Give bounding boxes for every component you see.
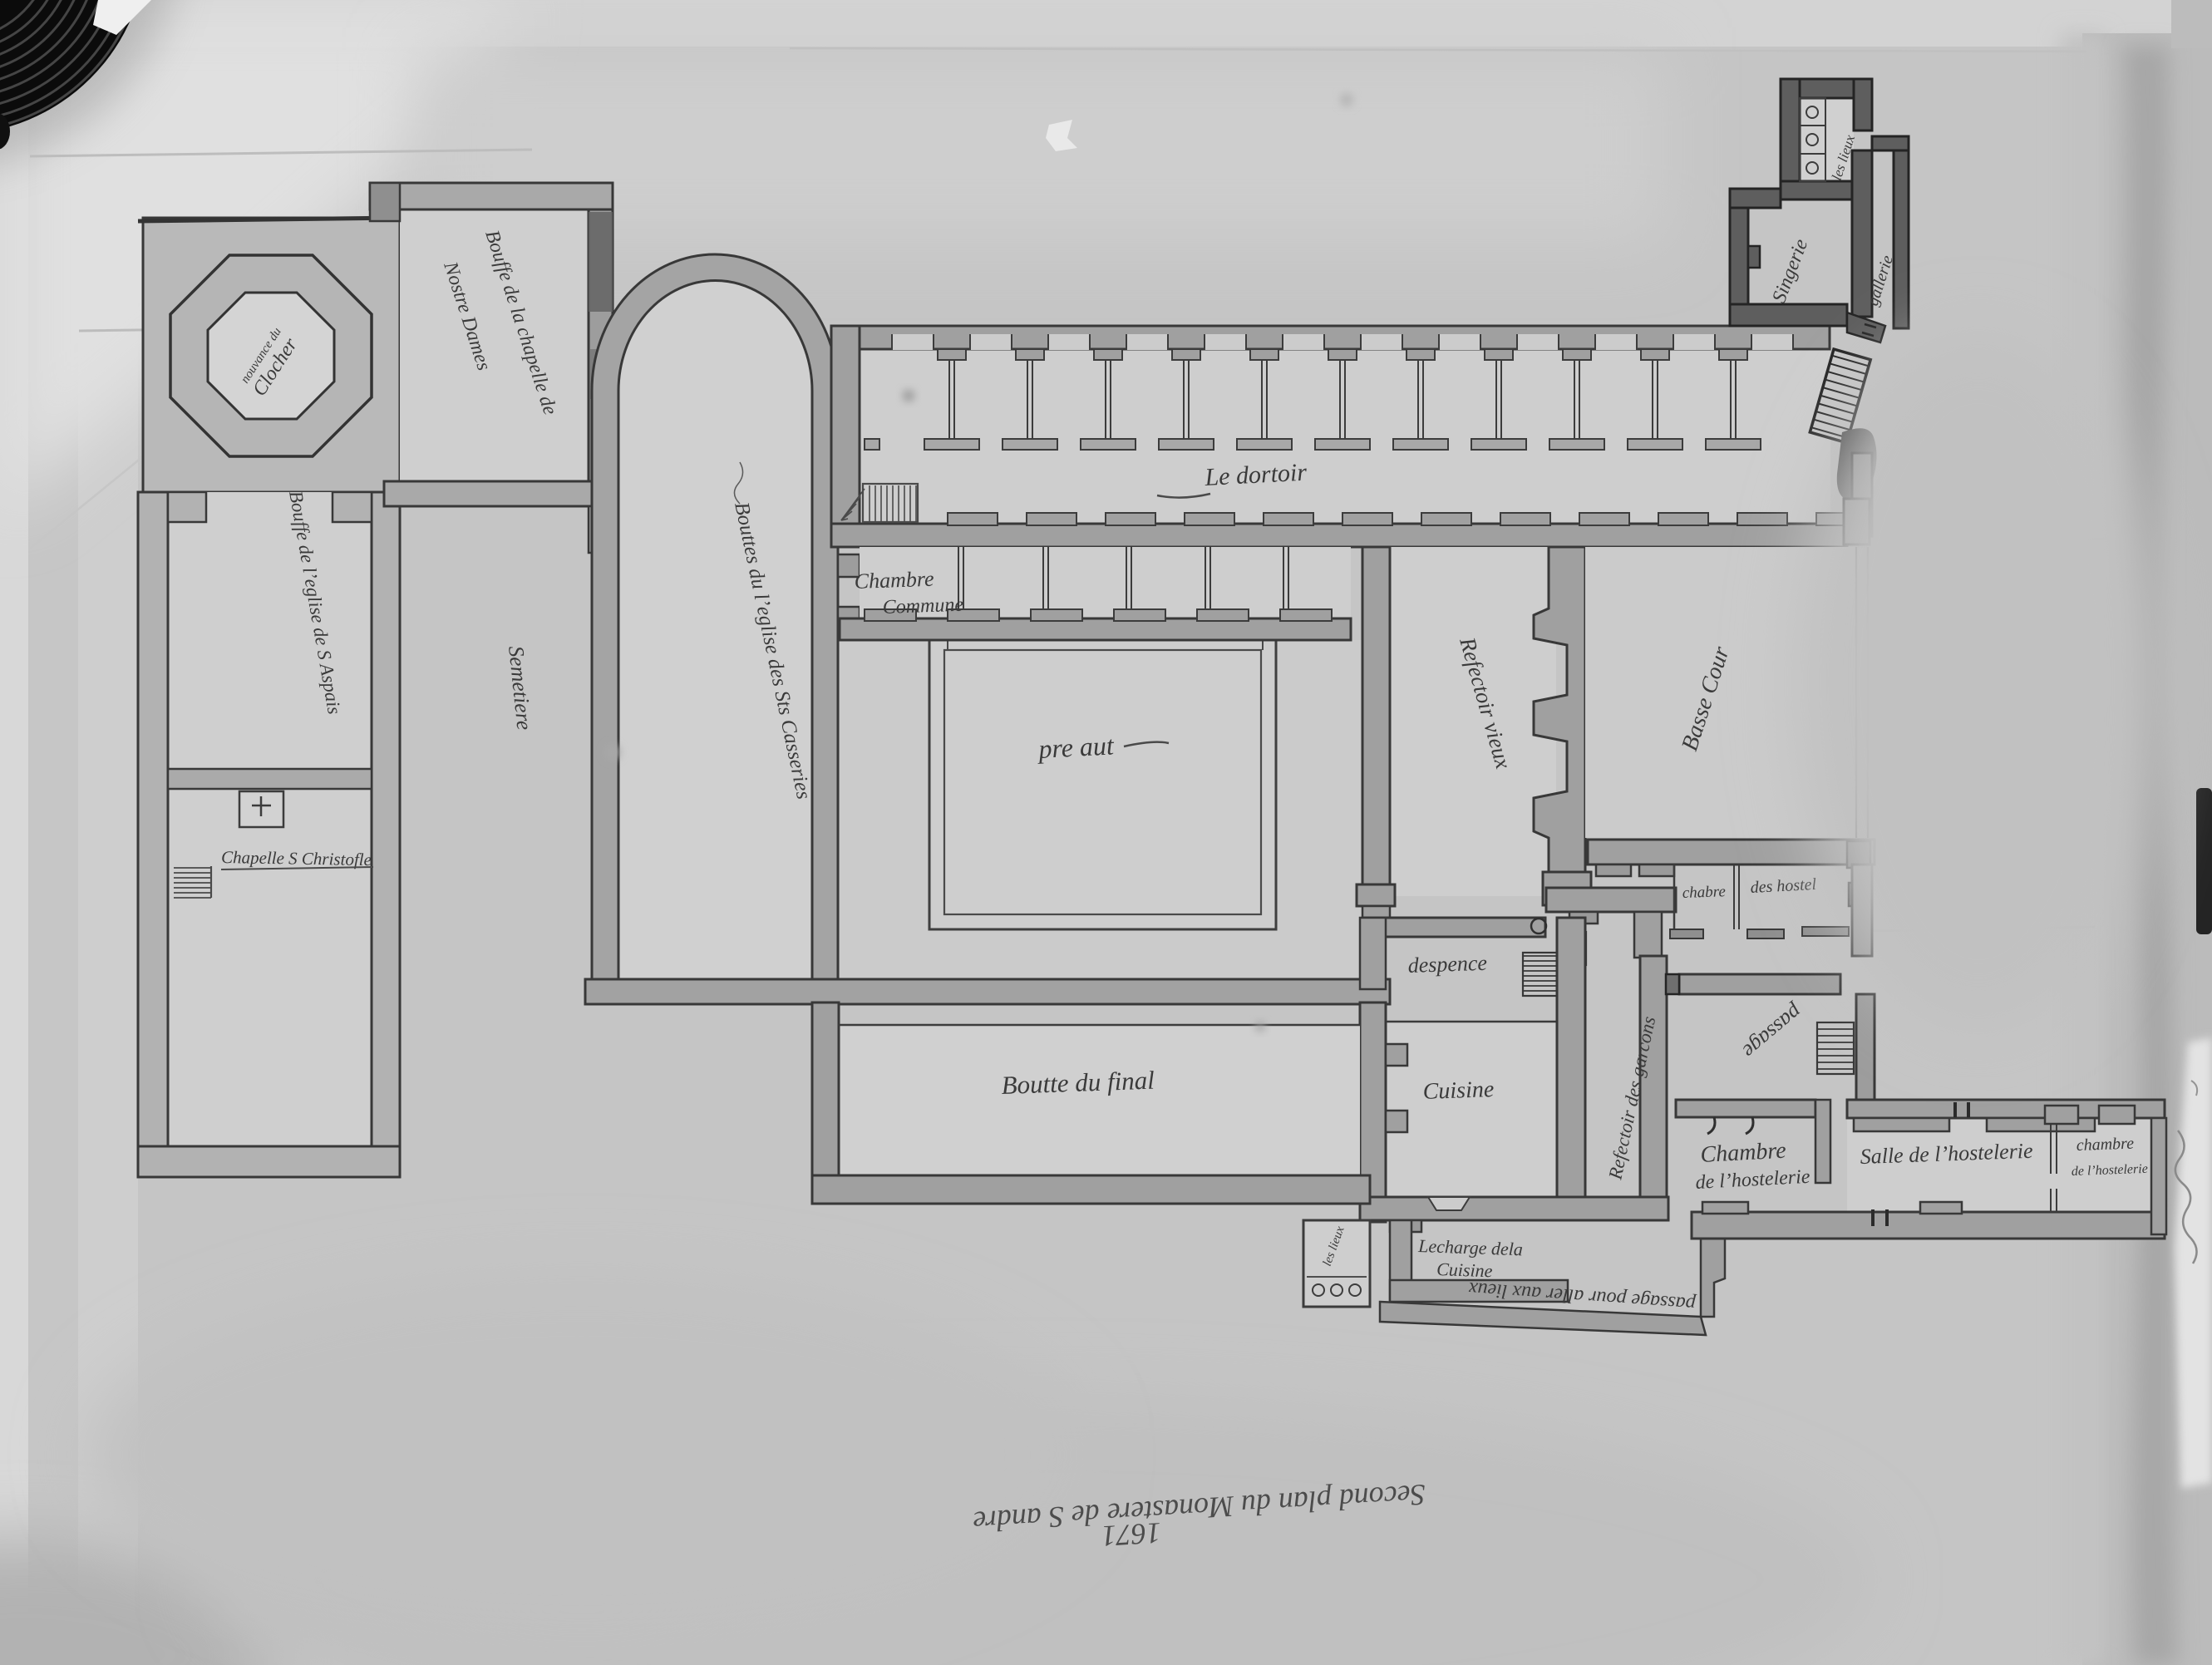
svg-text:Cuisine: Cuisine (1422, 1076, 1495, 1105)
svg-text:Chambre: Chambre (854, 567, 934, 594)
svg-text:despence: despence (1407, 951, 1487, 978)
svg-text:Boutte du final: Boutte du final (1001, 1066, 1155, 1100)
svg-text:Le dortoir: Le dortoir (1204, 459, 1308, 491)
svg-text:pre aut: pre aut (1036, 730, 1115, 764)
svg-text:Chapelle S Christofle: Chapelle S Christofle (221, 847, 372, 869)
svg-text:de l’hostelerie: de l’hostelerie (2072, 1162, 2149, 1179)
svg-text:des hostel: des hostel (1750, 875, 1817, 897)
svg-text:chabre: chabre (1682, 883, 1726, 902)
svg-text:1671: 1671 (1101, 1516, 1162, 1553)
svg-text:Cuisine: Cuisine (1436, 1259, 1493, 1281)
svg-text:Lecharge dela: Lecharge dela (1417, 1235, 1523, 1259)
svg-text:Chambre: Chambre (1700, 1138, 1787, 1168)
svg-text:Commune: Commune (882, 594, 964, 618)
svg-text:chambre: chambre (2076, 1135, 2134, 1155)
